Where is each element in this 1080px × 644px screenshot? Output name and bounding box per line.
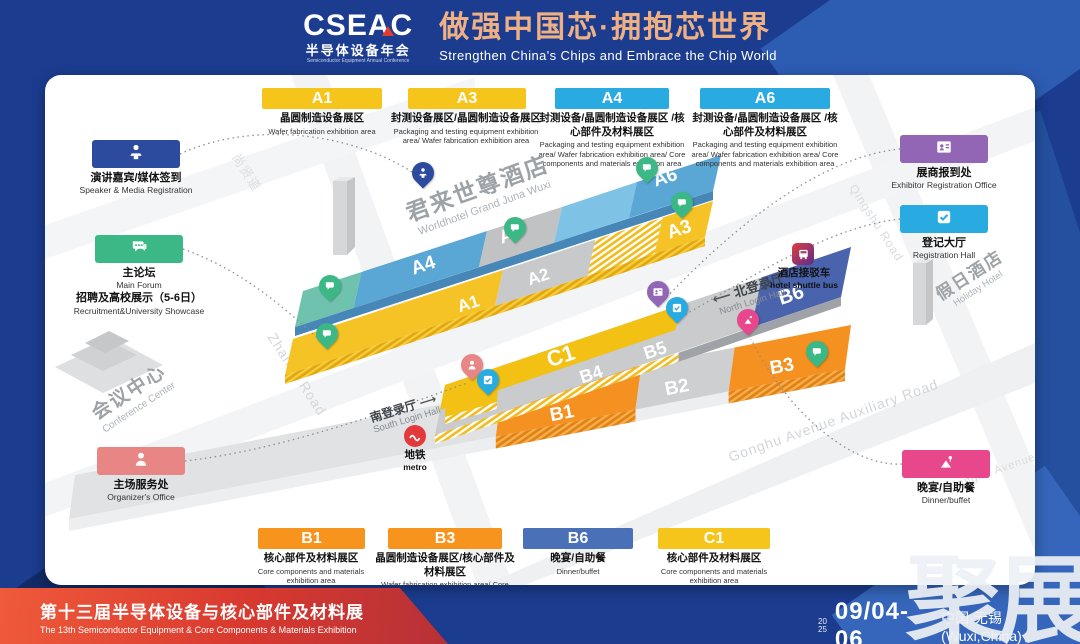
hall-desc-a3: 封测设备展区/晶圆制造设备展区 Packaging and testing eq… <box>391 112 541 145</box>
logo-red-triangle-icon <box>382 26 394 36</box>
registration-hall-pin <box>661 292 692 323</box>
chat-icon <box>319 275 341 297</box>
person-icon <box>132 450 150 473</box>
cseac-logo: CSEAC 半导体设备年会 Semiconductor Equipment An… <box>303 11 413 64</box>
forum-pin-a-west <box>314 270 345 301</box>
badge-icon <box>935 138 953 161</box>
dinner-icon <box>937 453 955 476</box>
legend-forum-box <box>95 235 183 263</box>
metro-label: 地铁 metro <box>387 449 443 472</box>
forum-pin-b3 <box>801 336 832 367</box>
chat-icon <box>636 157 658 179</box>
logo-subtitle-en: Semiconductor Equipment Annual Conferenc… <box>303 59 413 64</box>
legend-forum-label: 主论坛 Main Forum 招聘及高校展示（5-6日） Recruitment… <box>59 266 219 317</box>
forum-pin-a5 <box>499 212 530 243</box>
venue-map-card: 尚贤道 Zhanze Road 清舒道 Qingshu Road Gonghu … <box>45 75 1035 585</box>
page-title: 做强中国芯·拥抱芯世界 Strengthen China's Chips and… <box>439 11 777 63</box>
chat-icon <box>130 238 148 261</box>
title-zh: 做强中国芯·拥抱芯世界 <box>439 11 777 46</box>
forum-pin-a3 <box>666 187 697 218</box>
legend-dinner-label: 晚宴/自助餐 Dinner/buffet <box>866 481 1026 506</box>
legend-speaker-label: 演讲嘉宾/媒体签到 Speaker & Media Registration <box>56 171 216 196</box>
footer-year: 20 25 <box>818 618 827 634</box>
logo-subtitle-zh: 半导体设备年会 <box>303 44 413 57</box>
calendar-check-icon <box>666 297 688 319</box>
title-en: Strengthen China's Chips and Embrace the… <box>439 49 777 64</box>
speaker-icon <box>127 143 145 166</box>
metro-icon <box>404 425 426 447</box>
shuttle-bus-label: 酒店接驳车 hotel shuttle bus <box>758 267 850 290</box>
legend-organizer-label: 主场服务处 Organizer's Office <box>61 478 221 503</box>
hall-bar-b6: B6 <box>523 528 633 549</box>
worldhotel-tower <box>333 177 355 255</box>
legend-dinner-box <box>902 450 990 478</box>
hall-desc-a6: 封测设备/晶圆制造设备展区 /核心部件及材料展区 Packaging and t… <box>690 112 840 168</box>
legend-organizer-box <box>97 447 185 475</box>
legend-exhibitor-label: 展商报到处 Exhibitor Registration Office <box>864 166 1024 191</box>
hall-desc-a1: 晶圆制造设备展区 Wafer fabrication exhibition ar… <box>247 112 397 136</box>
hall-desc-b3: 晶圆制造设备展区/核心部件及材料展区 Wafer fabrication exh… <box>375 552 515 585</box>
hall-bar-a3: A3 <box>408 88 526 109</box>
dinner-pin <box>732 304 763 335</box>
exhibition-title-zh: 第十三届半导体设备与核心部件及材料展 <box>40 598 448 623</box>
hall-desc-b1: 核心部件及材料展区 Core components and materials … <box>241 552 381 585</box>
calendar-check-icon <box>477 369 499 391</box>
poster: CSEAC 半导体设备年会 Semiconductor Equipment An… <box>0 0 1080 644</box>
speaker-icon <box>412 162 434 184</box>
juzhan-watermark: 聚展 <box>906 523 1080 644</box>
forum-pin-a6 <box>631 152 662 183</box>
hall-bar-b1: B1 <box>258 528 365 549</box>
chat-icon <box>316 323 338 345</box>
hall-bar-a4: A4 <box>555 88 669 109</box>
hall-bar-b3: B3 <box>388 528 502 549</box>
forum-pin-a1 <box>311 318 342 349</box>
exhibition-title-en: The 13th Semiconductor Equipment & Core … <box>40 625 448 635</box>
hall-bar-a1: A1 <box>262 88 382 109</box>
legend-exhibitor-box <box>900 135 988 163</box>
legend-speaker-box <box>92 140 180 168</box>
hall-bar-a6: A6 <box>700 88 830 109</box>
chat-icon <box>504 217 526 239</box>
chat-icon <box>806 341 828 363</box>
legend-registration-box <box>900 205 988 233</box>
hall-bar-c1: C1 <box>658 528 770 549</box>
calendar-check-icon <box>935 208 953 231</box>
dinner-icon <box>737 309 759 331</box>
shuttle-bus-icon <box>792 243 814 265</box>
hall-desc-c1: 核心部件及材料展区 Core components and materials … <box>644 552 784 585</box>
footer-ribbon: 第十三届半导体设备与核心部件及材料展 The 13th Semiconducto… <box>0 588 448 644</box>
header: CSEAC 半导体设备年会 Semiconductor Equipment An… <box>0 0 1080 75</box>
logo-wordmark: CSEAC <box>303 11 413 41</box>
hall-desc-b6: 晚宴/自助餐 Dinner/buffet <box>508 552 648 576</box>
speaker-registration-pin <box>407 157 438 188</box>
chat-icon <box>671 192 693 214</box>
south-registration-pin <box>472 364 503 395</box>
